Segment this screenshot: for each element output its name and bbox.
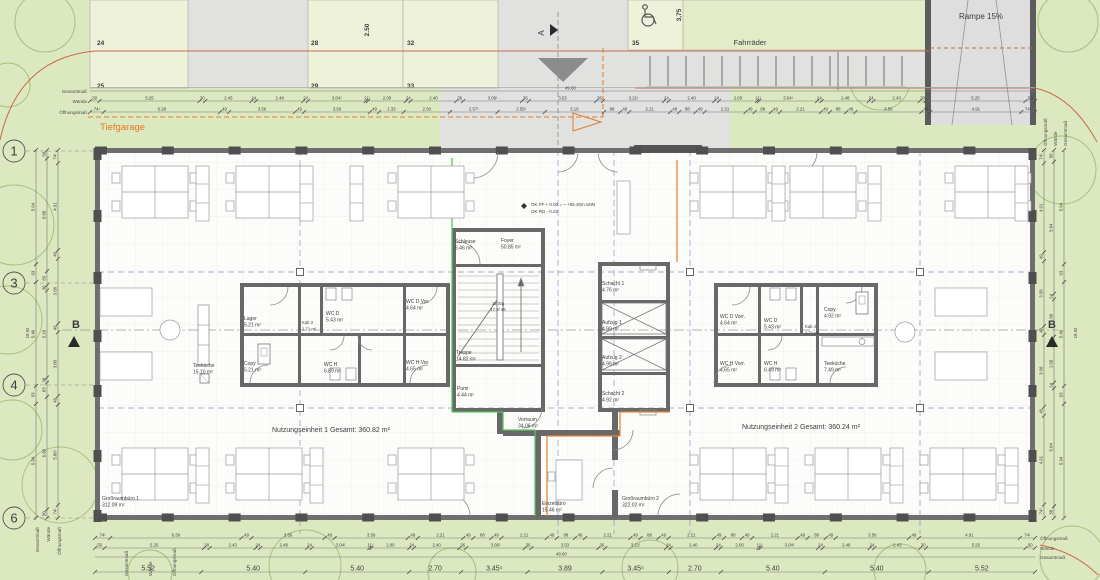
pier bbox=[963, 147, 975, 155]
interior-wall bbox=[452, 364, 545, 367]
chair bbox=[466, 455, 474, 465]
interior-wall bbox=[541, 228, 545, 412]
chair bbox=[112, 173, 120, 183]
dim-value: 5.40 bbox=[350, 566, 364, 573]
desk bbox=[935, 352, 987, 380]
grid-bubble-number: 4 bbox=[10, 378, 17, 393]
dim-value: 3.53 bbox=[558, 96, 567, 101]
chair bbox=[112, 483, 120, 493]
interior-wall bbox=[816, 287, 819, 333]
pier bbox=[763, 514, 775, 522]
unit2-total-label: Nutzungseinheit 2 Gesamt: 360.24 m² bbox=[742, 424, 861, 431]
section-a-marker: A bbox=[537, 30, 546, 36]
dim-value: 49 bbox=[661, 533, 666, 538]
pier bbox=[429, 514, 441, 522]
dim-value: 74¹ bbox=[53, 153, 58, 160]
chair bbox=[112, 201, 120, 211]
dim-value: 2.70 bbox=[688, 566, 702, 573]
dim-value: 50 bbox=[1049, 153, 1054, 158]
dim-value: 83 bbox=[42, 275, 47, 280]
sideboard bbox=[617, 181, 630, 234]
chair bbox=[388, 483, 396, 493]
pier bbox=[1029, 210, 1037, 222]
room-area-grossraum1: 312.09 m² bbox=[102, 503, 125, 509]
dim-label-waende-bottom: Wände bbox=[148, 561, 153, 576]
room-name-wchv1: WC H Vor. bbox=[406, 360, 429, 366]
interior-wall bbox=[452, 228, 545, 232]
dim-value: 49 bbox=[372, 107, 377, 112]
interior-wall bbox=[714, 383, 878, 387]
sideboard bbox=[1015, 166, 1028, 221]
dim-value: 36 bbox=[597, 96, 602, 101]
dim-value: 49 bbox=[800, 533, 805, 538]
kitchen-cabinet bbox=[198, 305, 209, 365]
dim-value: 1.60 bbox=[1049, 359, 1054, 368]
dim-label-waende-bottomleft-strip: Wände bbox=[46, 527, 51, 542]
desk-cluster bbox=[780, 166, 866, 218]
room-area-wch1: 6.89 m² bbox=[324, 369, 341, 375]
chair bbox=[466, 201, 474, 211]
pier bbox=[94, 210, 102, 222]
pier bbox=[1029, 510, 1037, 522]
dim-value: 74¹ bbox=[53, 508, 58, 515]
dim-value: 3.19 bbox=[570, 107, 579, 112]
interior-wall bbox=[758, 287, 761, 333]
desk-cluster bbox=[690, 448, 776, 500]
room-name-wcdv2: WC D Vorr. bbox=[720, 314, 745, 320]
grid-bubble-number: 6 bbox=[10, 511, 17, 526]
dim-value: 49 bbox=[244, 533, 249, 538]
room-name-wcdv1: WC D Vor. bbox=[406, 299, 429, 305]
dim-value: 2.21 bbox=[436, 533, 445, 538]
entry-wall bbox=[634, 145, 702, 153]
toilet bbox=[770, 288, 780, 300]
desk bbox=[100, 352, 152, 380]
column bbox=[687, 269, 694, 276]
dim-value: 49 bbox=[828, 533, 833, 538]
dim-value: 3.53 bbox=[561, 543, 570, 548]
dim-value: 93 bbox=[1059, 270, 1064, 275]
dim-value: 49 bbox=[672, 107, 677, 112]
pier bbox=[295, 147, 307, 155]
pier bbox=[94, 510, 102, 522]
dim-value: 50 bbox=[1049, 509, 1054, 514]
room-name-wcd1: WC D bbox=[326, 311, 340, 317]
pier bbox=[696, 514, 708, 522]
dim-value: 93 bbox=[31, 270, 36, 275]
dim-value: 2.48 bbox=[842, 543, 851, 548]
dim-value: 93 bbox=[31, 392, 36, 397]
column bbox=[917, 269, 924, 276]
stair-rail bbox=[497, 274, 503, 360]
dim-value: 5.64 bbox=[1049, 223, 1054, 232]
dim-value: 2.43 bbox=[224, 96, 233, 101]
desk bbox=[935, 288, 987, 316]
room-name-pumi: Pumi bbox=[457, 386, 468, 392]
desk-cluster bbox=[112, 448, 198, 500]
dim-value: 3.45⁵ bbox=[486, 566, 503, 573]
chair bbox=[945, 173, 953, 183]
dim-value: 30 bbox=[42, 377, 47, 382]
dim-value: 36 bbox=[457, 96, 462, 101]
interior-wall bbox=[320, 287, 323, 333]
dim-value: 49 bbox=[923, 107, 928, 112]
interior-wall bbox=[298, 287, 301, 383]
parking-number: 28 bbox=[311, 40, 319, 47]
dim-value: 24 bbox=[869, 96, 874, 101]
dim-value: 49 bbox=[53, 325, 58, 330]
dim-label-waende-topright: Wände bbox=[1053, 131, 1058, 146]
dim-value: 88 bbox=[480, 533, 485, 538]
tiefgarage-label: Tiefgarage bbox=[100, 122, 145, 133]
chair bbox=[388, 201, 396, 211]
dim-value: 83 bbox=[42, 387, 47, 392]
dim-value: 4.91 bbox=[1039, 203, 1044, 212]
dim-value: 3.98 bbox=[1039, 366, 1044, 375]
room-name-kab3: Kab 3 bbox=[302, 320, 314, 325]
dim-label-oeffnung-bottomright: Öffnungsmaß bbox=[1040, 535, 1068, 541]
chair bbox=[548, 472, 555, 481]
total-length-bottom: 49.60 bbox=[556, 552, 567, 557]
pier bbox=[229, 514, 241, 522]
dim-value: 88 bbox=[610, 107, 615, 112]
pier bbox=[362, 147, 374, 155]
parking-stall-column bbox=[90, 0, 188, 88]
dim-value: 2.48 bbox=[276, 96, 285, 101]
dim-value: 3.04¹ bbox=[332, 96, 342, 101]
interior-wall bbox=[598, 372, 670, 375]
dim-value: 5.25 bbox=[145, 96, 154, 101]
dim-value: 2.21 bbox=[721, 107, 730, 112]
dim-value: 49 bbox=[823, 107, 828, 112]
grid-bubble-number: 3 bbox=[10, 276, 17, 291]
chair bbox=[466, 483, 474, 493]
dim-value: 93 bbox=[1059, 392, 1064, 397]
pier bbox=[1029, 330, 1037, 342]
dim-value: 6.60 bbox=[42, 448, 47, 457]
dim-value: 49 bbox=[466, 533, 471, 538]
room-area-schacht1: 4.76 m² bbox=[602, 288, 619, 294]
bicycle-area bbox=[683, 0, 930, 50]
room-area-wchv2: 4.65 m² bbox=[720, 368, 737, 374]
room-area-vorraum: 34.06 m² bbox=[518, 424, 538, 430]
parking-number: 33 bbox=[407, 83, 415, 90]
dim-value: 5.94 bbox=[31, 202, 36, 211]
grid-bubble-number: 1 bbox=[10, 144, 17, 159]
room-name-foyer: Foyer bbox=[501, 238, 514, 244]
pier bbox=[1029, 272, 1037, 284]
pier bbox=[897, 514, 909, 522]
dim-value: 36 bbox=[523, 96, 528, 101]
parking-stall-column bbox=[403, 0, 498, 88]
dim-value: 2.21 bbox=[771, 533, 780, 538]
dim-value: 4.91 bbox=[1039, 455, 1044, 464]
dim-value: 49 bbox=[848, 107, 853, 112]
interior-wall bbox=[503, 430, 620, 436]
interior-wall bbox=[800, 287, 803, 333]
pier bbox=[362, 514, 374, 522]
desk-cluster bbox=[388, 166, 474, 218]
dim-value: 50 bbox=[1028, 543, 1033, 548]
dim-value: 5.40 bbox=[246, 566, 260, 573]
room-name-teekueche2: Teeküche bbox=[824, 361, 846, 367]
dim-value: 30 bbox=[204, 543, 209, 548]
dim-value: 2.57¹ bbox=[469, 107, 479, 112]
dim-value: 49 bbox=[622, 107, 627, 112]
desk-cluster bbox=[805, 448, 891, 500]
room-name-grossraum2: Großraumbüro 2 bbox=[622, 496, 659, 502]
dim-value: 5.25 bbox=[150, 543, 159, 548]
dim-value: 2.43 bbox=[228, 543, 237, 548]
dim-value: 3.89 bbox=[558, 566, 572, 573]
dim-value: 2.48 bbox=[841, 96, 850, 101]
column bbox=[687, 405, 694, 412]
dim-value: 50 bbox=[1028, 96, 1033, 101]
dim-value: 2.21 bbox=[604, 533, 613, 538]
pier bbox=[1029, 450, 1037, 462]
chair bbox=[690, 173, 698, 183]
dim-value: 24 bbox=[664, 96, 669, 101]
room-area-kab4: 2.71 m² bbox=[805, 331, 820, 336]
room-area-schacht2: 4.92 m² bbox=[602, 398, 619, 404]
copier bbox=[258, 344, 270, 364]
chair bbox=[690, 455, 698, 465]
dim-value: 49 bbox=[578, 533, 583, 538]
desk bbox=[556, 460, 582, 500]
chair bbox=[690, 201, 698, 211]
dim-value: 4.91 bbox=[53, 202, 58, 211]
desk-cluster bbox=[690, 166, 776, 218]
interior-wall bbox=[598, 336, 670, 339]
room-name-kab4: Kab 4 bbox=[805, 324, 817, 329]
room-area-lager: 5.21 m² bbox=[244, 323, 261, 329]
dim-value: 49 bbox=[549, 533, 554, 538]
dim-value: 5.94 bbox=[1059, 202, 1064, 211]
room-area-wcdv1: 4.64 m² bbox=[406, 306, 423, 312]
dim-value: 24 bbox=[817, 96, 822, 101]
pier bbox=[1029, 148, 1037, 160]
dim-value: 50 bbox=[42, 151, 47, 156]
floor-plan-drawing: 24283235252933 505.25302.43242.48243.04¹… bbox=[0, 0, 1100, 580]
dim-value: 49 bbox=[912, 533, 917, 538]
dim-value: 50 bbox=[42, 511, 47, 516]
stair-rise-label: 17.9/ 28 bbox=[490, 307, 506, 312]
dim-value: 49 bbox=[1039, 254, 1044, 259]
room-name-wchv2: WC H Vorr. bbox=[720, 361, 745, 367]
dim-value: 49 bbox=[494, 533, 499, 538]
interior-wall bbox=[612, 408, 618, 460]
pier bbox=[162, 147, 174, 155]
dim-value: 3.56 bbox=[258, 107, 267, 112]
sideboard bbox=[300, 166, 313, 221]
interior-wall bbox=[598, 262, 670, 266]
desk-cluster bbox=[388, 448, 474, 500]
dim-value: 24 bbox=[714, 96, 719, 101]
fahrraeder-label: Fahrräder bbox=[734, 38, 767, 47]
dim-value: 74¹ bbox=[99, 533, 106, 538]
dim-value: 24 bbox=[307, 543, 312, 548]
room-name-wch1: WC H bbox=[324, 362, 338, 368]
chair bbox=[805, 455, 813, 465]
room-name-treppe: Treppe bbox=[456, 350, 472, 356]
dim-label-gesamt-topleft: Gesamtmaß bbox=[62, 89, 87, 94]
dim-value: 2.40 bbox=[432, 543, 441, 548]
interior-wall bbox=[598, 300, 670, 303]
dim-value: 36 bbox=[526, 543, 531, 548]
dim-value: 2.70 bbox=[428, 566, 442, 573]
room-area-wcdv2: 4.64 m² bbox=[720, 321, 737, 327]
sideboard bbox=[310, 448, 323, 503]
dim-value: 3.09¹ bbox=[491, 543, 501, 548]
dim-value: 36 bbox=[460, 543, 465, 548]
chair bbox=[226, 483, 234, 493]
dim-value: 5.94 bbox=[1059, 456, 1064, 465]
interior-wall bbox=[714, 333, 878, 336]
dim-value: 49 bbox=[1039, 408, 1044, 413]
room-area-aufzug2: 4.99 m² bbox=[602, 362, 619, 368]
dim-value: 2.43 bbox=[892, 96, 901, 101]
chair bbox=[226, 173, 234, 183]
room-area-wcd1: 5.43 m² bbox=[326, 318, 343, 324]
chair bbox=[805, 483, 813, 493]
dim-value: 30 bbox=[921, 543, 926, 548]
column bbox=[297, 405, 304, 412]
dim-value: 49 bbox=[327, 533, 332, 538]
pier bbox=[830, 147, 842, 155]
dim-label-gesamt-bottom: Gesamtmaß bbox=[124, 551, 129, 576]
dim-value: 5.66¹ bbox=[53, 449, 58, 459]
dim-value: 24 bbox=[818, 543, 823, 548]
desk-cluster bbox=[226, 166, 312, 218]
sideboard bbox=[890, 448, 903, 503]
room-name-wcd2: WC D bbox=[764, 318, 778, 324]
dim-value: 3.09¹ bbox=[488, 96, 498, 101]
pier bbox=[830, 514, 842, 522]
dim-value: 5.52 bbox=[975, 566, 989, 573]
dim-value: 74¹ bbox=[94, 107, 101, 112]
dim-value: 3.56 bbox=[333, 107, 342, 112]
dim-value: 2.50 bbox=[423, 107, 432, 112]
room-name-schleuse: Schleuse bbox=[455, 239, 476, 245]
dim-label-oeffnung-topleft: Öffnungsmaß bbox=[59, 109, 87, 115]
chair bbox=[690, 483, 698, 493]
dim-value: 30 bbox=[920, 96, 925, 101]
pier bbox=[94, 148, 102, 160]
desk-cluster bbox=[112, 166, 198, 218]
dim-value: 5.25 bbox=[971, 96, 980, 101]
dim-value: 49 bbox=[633, 533, 638, 538]
interior-wall bbox=[240, 383, 450, 387]
dim-value: 74¹ bbox=[1039, 508, 1044, 515]
chair bbox=[945, 201, 953, 211]
dim-value: 2.21 bbox=[796, 107, 805, 112]
dim-value: 2.00 bbox=[734, 96, 743, 101]
dim-label-oeffnung-bottomleft-strip: Öffnungsmaß bbox=[56, 527, 62, 555]
dim-value: 5.40 bbox=[870, 566, 884, 573]
dim-value: 49 bbox=[297, 107, 302, 112]
desk bbox=[100, 288, 152, 316]
pier bbox=[1029, 385, 1037, 397]
room-area-grossraum2: 322.02 m² bbox=[622, 503, 645, 509]
dim-value: 49 bbox=[1039, 327, 1044, 332]
room-name-aufzug1: Aufzug 1 bbox=[602, 320, 622, 326]
pier bbox=[897, 147, 909, 155]
dim-value: 50 bbox=[97, 543, 102, 548]
sideboard bbox=[772, 166, 785, 221]
dim-value: 6.39 bbox=[172, 533, 181, 538]
chair bbox=[466, 173, 474, 183]
pier bbox=[94, 450, 102, 462]
dim-value: 1.33 bbox=[387, 107, 396, 112]
column bbox=[917, 405, 924, 412]
dim-value: 49 bbox=[745, 533, 750, 538]
interior-wall bbox=[240, 283, 450, 287]
dim-value: 24 bbox=[406, 96, 411, 101]
copier bbox=[856, 292, 868, 314]
dim-value: 2.00 bbox=[383, 96, 392, 101]
dim-value: 3.56 bbox=[367, 533, 376, 538]
rampe-label: Rampe 15% bbox=[959, 12, 1003, 21]
dim-value: 2.21 bbox=[687, 533, 696, 538]
room-area-schleuse: 6.46 m² bbox=[455, 246, 472, 252]
pier bbox=[429, 147, 441, 155]
dim-value: 88 bbox=[814, 533, 819, 538]
chair bbox=[920, 483, 928, 493]
room-area-teekueche2: 7.49 m² bbox=[824, 368, 841, 374]
pier bbox=[229, 147, 241, 155]
dim-value: 3.04¹ bbox=[785, 543, 795, 548]
sideboard bbox=[196, 448, 209, 503]
room-area-kab3: 2.71 m² bbox=[302, 327, 317, 332]
dim-label-gesamt-bottomleft-strip: Gesamtmaß bbox=[35, 527, 40, 552]
chair bbox=[858, 173, 866, 183]
accessible-stall-dim: 3,75 bbox=[676, 8, 683, 21]
level-annotation-line2: OK RD - 0.22 bbox=[531, 209, 559, 214]
room-name-schacht2: Schacht 2 bbox=[602, 391, 624, 397]
dim-value: 24 bbox=[256, 543, 261, 548]
pier bbox=[629, 514, 641, 522]
unit1-total-label: Nutzungseinheit 1 Gesamt: 360.82 m² bbox=[272, 427, 391, 434]
dim-value: 6.60 bbox=[42, 210, 47, 219]
desk-cluster bbox=[226, 448, 312, 500]
pier bbox=[696, 147, 708, 155]
round-table bbox=[160, 320, 180, 340]
interior-wall bbox=[612, 490, 618, 518]
dim-value: 49 bbox=[222, 107, 227, 112]
dim-value: 2.40 bbox=[429, 96, 438, 101]
dim-value: 5.10 bbox=[42, 329, 47, 338]
dim-value: 5.04 bbox=[1049, 443, 1054, 452]
pier bbox=[963, 514, 975, 522]
dim-value: 3.58 bbox=[1039, 289, 1044, 298]
interior-wall bbox=[714, 283, 878, 287]
room-area-wchv1: 4.65 m² bbox=[406, 367, 423, 373]
interior-wall bbox=[452, 264, 545, 267]
room-name-copy1: Copy bbox=[244, 361, 256, 367]
dim-value: 3.56 bbox=[884, 107, 893, 112]
room-name-wch2: WC H bbox=[764, 361, 778, 367]
pier bbox=[496, 514, 508, 522]
round-table bbox=[895, 322, 915, 342]
desk-cluster bbox=[920, 448, 1006, 500]
interior-wall bbox=[240, 333, 450, 336]
stall-width-dim: 2.50 bbox=[364, 23, 371, 36]
dim-value: 3.21¹ bbox=[629, 96, 639, 101]
dim-value: 49 bbox=[410, 533, 415, 538]
dim-label-waende-bottomright: Wände bbox=[1040, 546, 1055, 551]
room-area-einzelbuero: 15.46 m² bbox=[542, 508, 562, 514]
dim-value: 30 bbox=[200, 96, 205, 101]
